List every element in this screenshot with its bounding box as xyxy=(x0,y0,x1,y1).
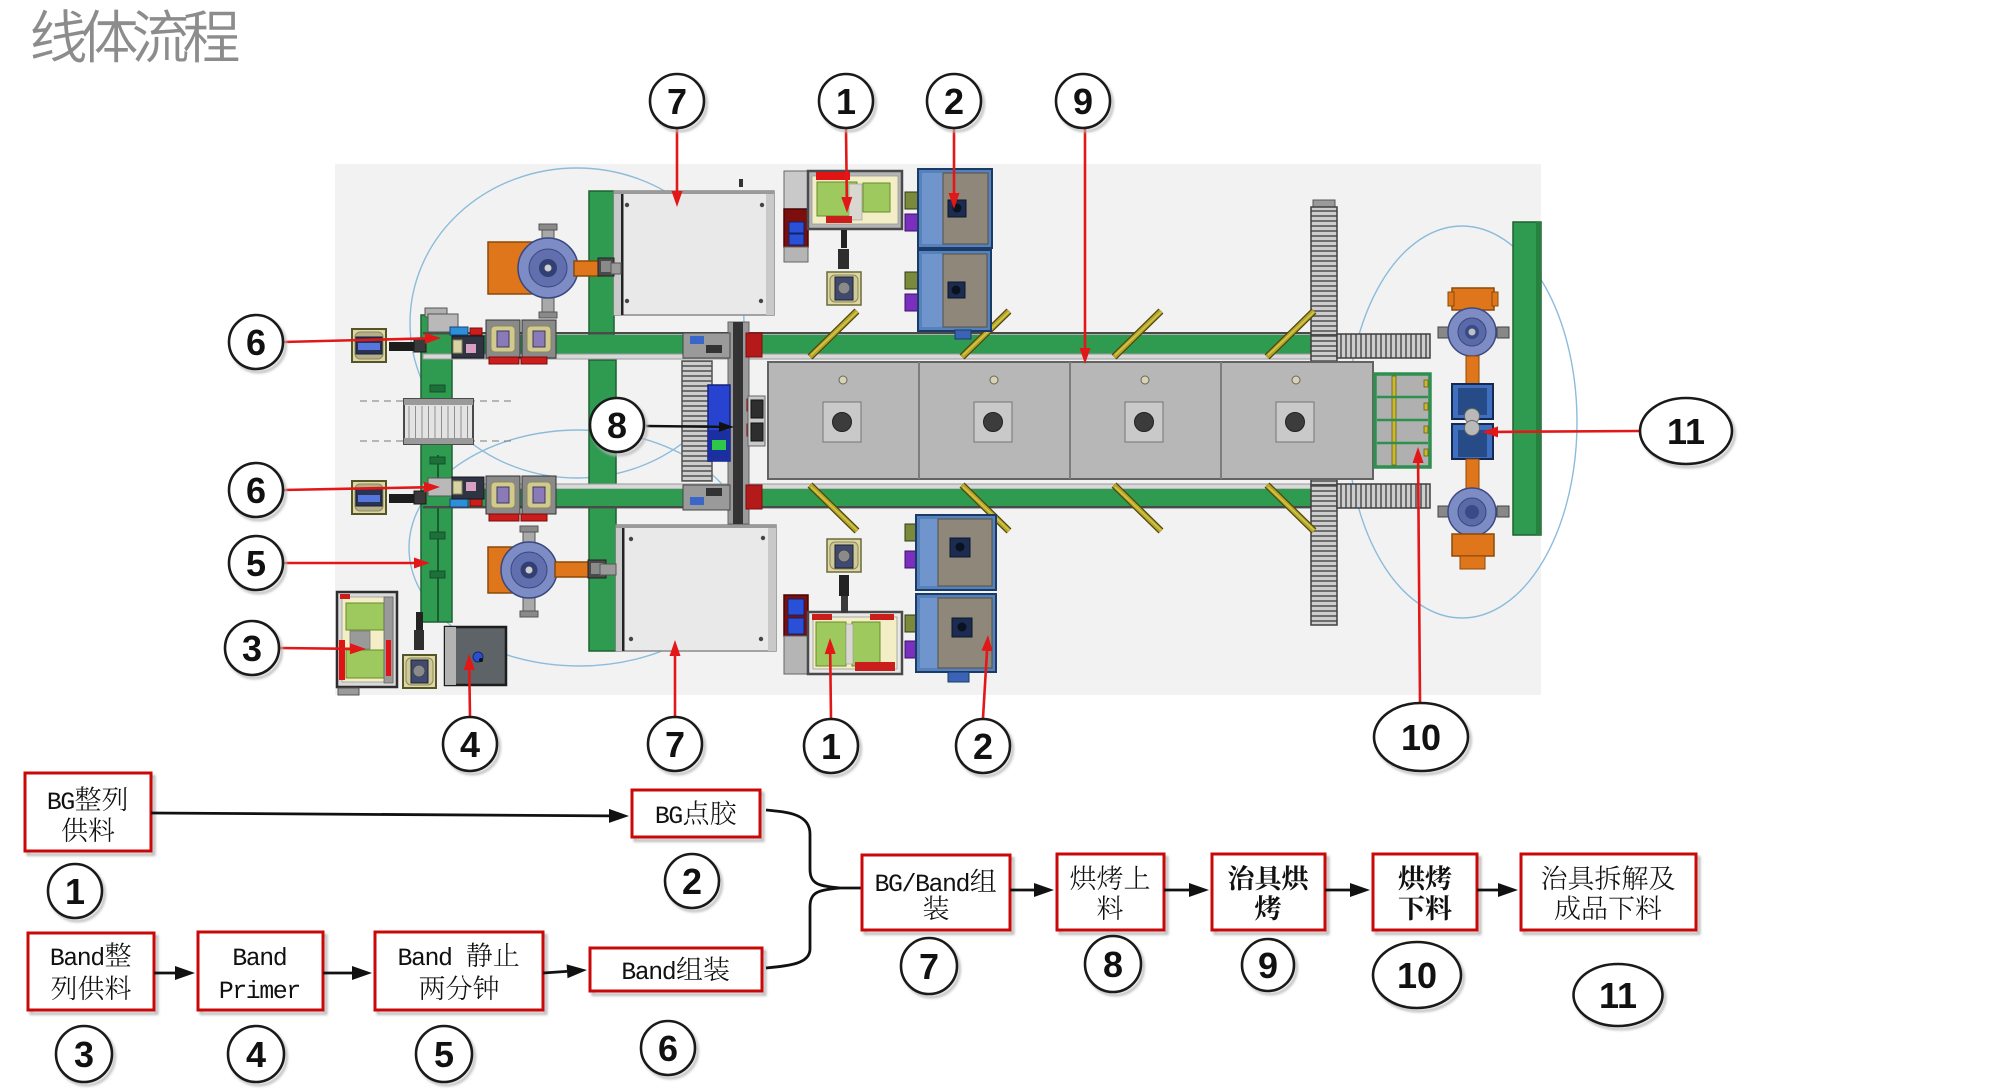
svg-text:3: 3 xyxy=(242,628,262,669)
svg-text:6: 6 xyxy=(246,322,266,363)
svg-text:2: 2 xyxy=(973,726,993,767)
svg-text:9: 9 xyxy=(1258,945,1278,986)
svg-text:1: 1 xyxy=(65,871,85,912)
svg-text:6: 6 xyxy=(658,1028,678,1069)
svg-text:1: 1 xyxy=(836,81,856,122)
svg-text:3: 3 xyxy=(74,1034,94,1075)
svg-text:11: 11 xyxy=(1667,411,1705,452)
svg-text:1: 1 xyxy=(821,726,841,767)
svg-text:9: 9 xyxy=(1073,81,1093,122)
svg-text:5: 5 xyxy=(434,1034,454,1075)
svg-text:8: 8 xyxy=(1103,944,1123,985)
svg-text:11: 11 xyxy=(1599,975,1637,1016)
svg-text:7: 7 xyxy=(919,946,939,987)
svg-text:7: 7 xyxy=(665,724,685,765)
svg-text:7: 7 xyxy=(667,81,687,122)
svg-text:10: 10 xyxy=(1401,717,1441,758)
svg-text:10: 10 xyxy=(1397,955,1437,996)
svg-text:6: 6 xyxy=(246,470,266,511)
svg-text:8: 8 xyxy=(607,405,627,446)
svg-text:4: 4 xyxy=(460,724,480,765)
svg-text:2: 2 xyxy=(682,861,702,902)
svg-text:5: 5 xyxy=(246,543,266,584)
svg-text:2: 2 xyxy=(944,81,964,122)
svg-text:4: 4 xyxy=(246,1034,266,1075)
